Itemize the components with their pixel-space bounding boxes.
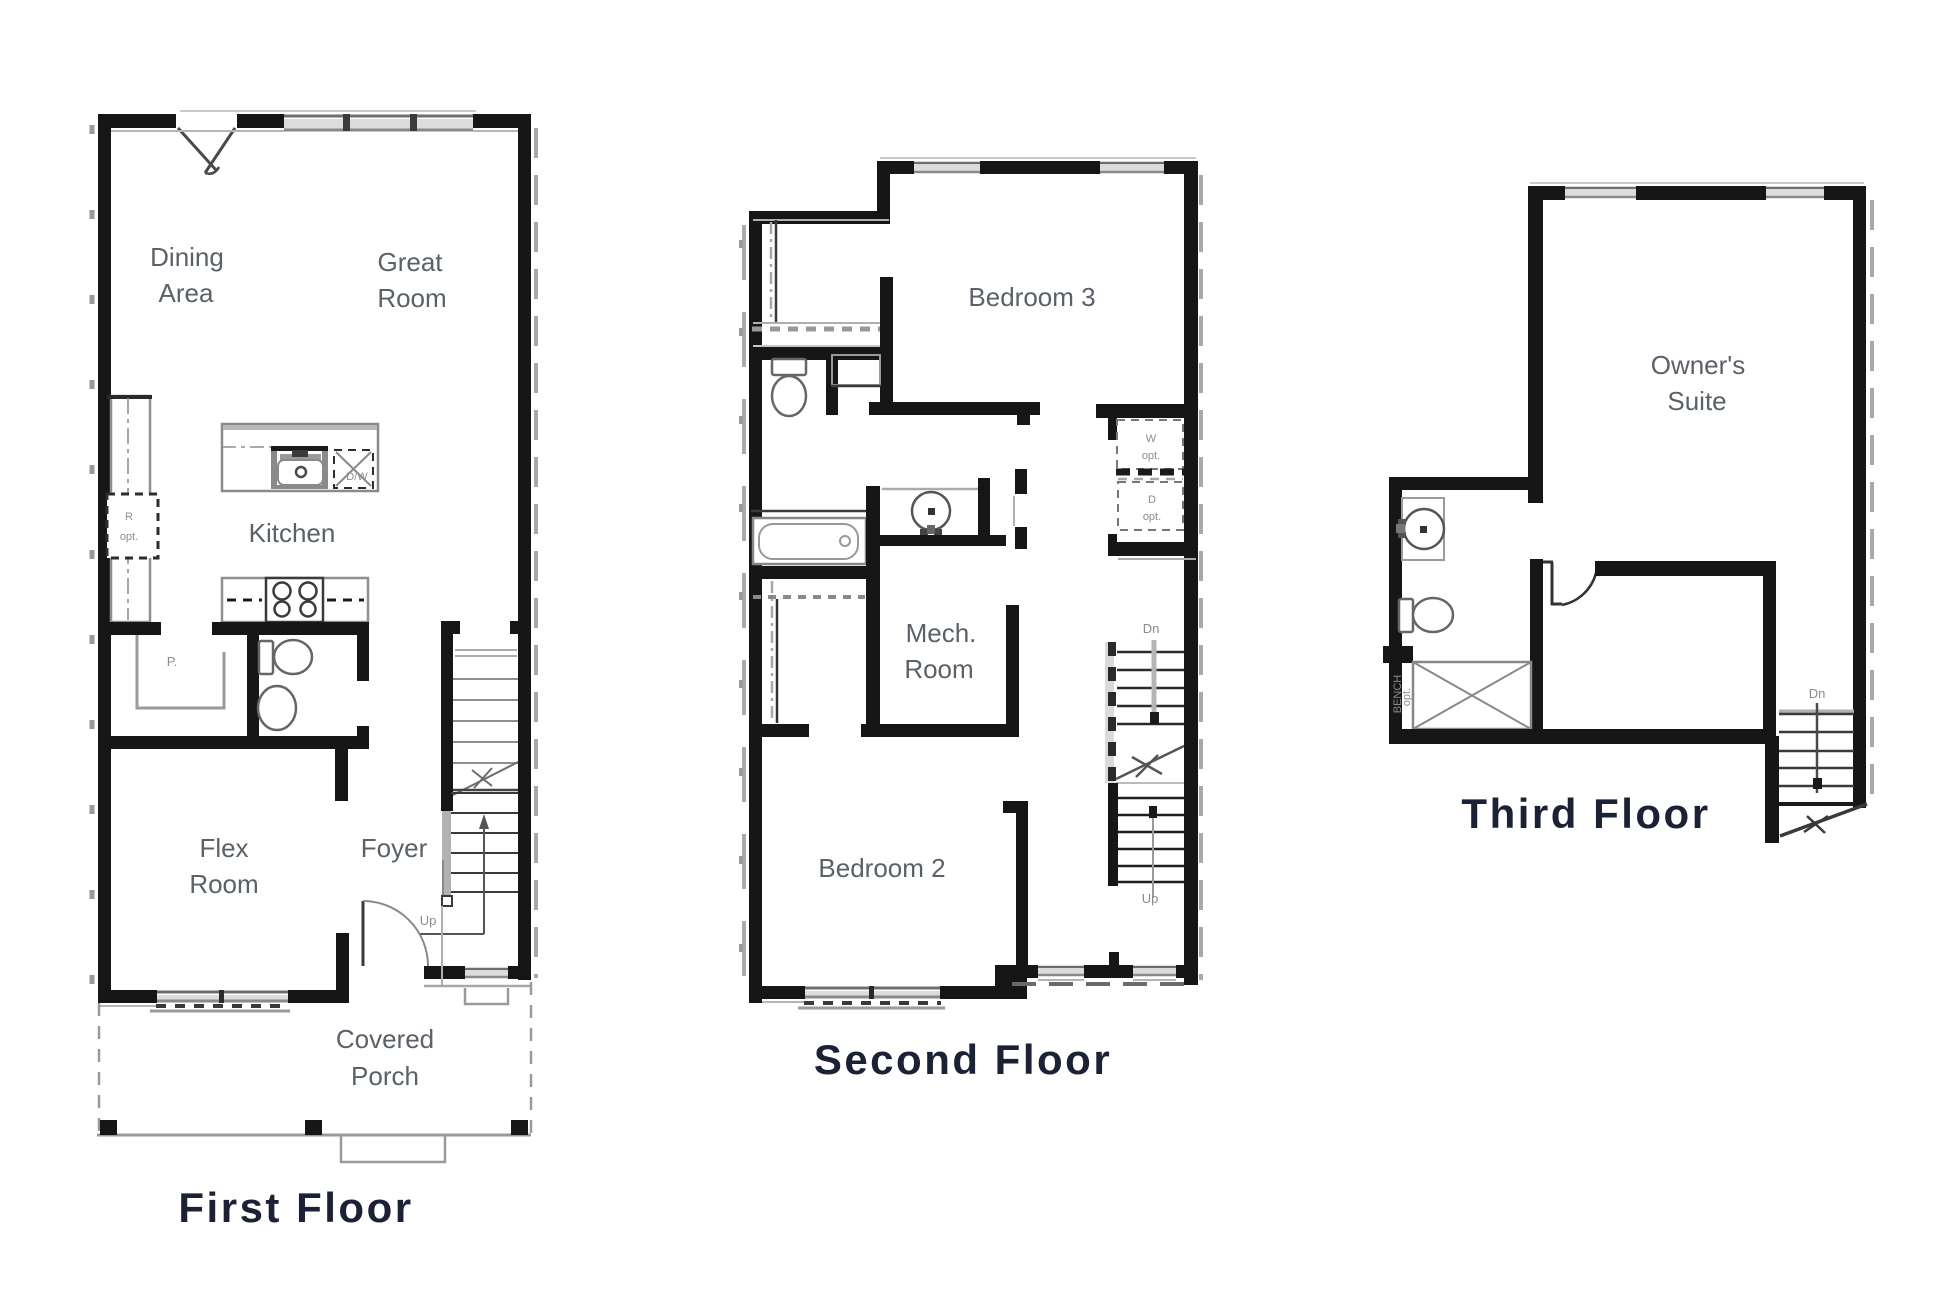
- svg-text:W: W: [1146, 433, 1157, 445]
- svg-text:Flex: Flex: [199, 833, 248, 863]
- svg-text:opt.: opt.: [1143, 511, 1161, 523]
- svg-text:opt.: opt.: [120, 531, 138, 543]
- svg-text:Dn: Dn: [1143, 621, 1160, 636]
- svg-text:Suite: Suite: [1667, 386, 1726, 416]
- svg-text:Second Floor: Second Floor: [814, 1036, 1112, 1083]
- svg-text:Owner's: Owner's: [1651, 350, 1746, 380]
- svg-text:D/W: D/W: [346, 471, 368, 483]
- svg-text:Up: Up: [1142, 891, 1159, 906]
- svg-text:opt.: opt.: [1401, 688, 1413, 706]
- svg-text:Room: Room: [904, 654, 973, 684]
- svg-text:Dn: Dn: [1809, 686, 1826, 701]
- svg-text:Room: Room: [189, 869, 258, 899]
- svg-text:Porch: Porch: [351, 1061, 419, 1091]
- svg-text:Bedroom 3: Bedroom 3: [968, 282, 1095, 312]
- svg-text:P.: P.: [167, 654, 178, 669]
- svg-text:Mech.: Mech.: [906, 618, 977, 648]
- svg-text:D: D: [1148, 494, 1156, 506]
- svg-text:Dining: Dining: [150, 242, 224, 272]
- svg-text:Room: Room: [377, 283, 446, 313]
- svg-text:Up: Up: [420, 913, 437, 928]
- svg-text:opt.: opt.: [1142, 450, 1160, 462]
- svg-text:Covered: Covered: [336, 1024, 434, 1054]
- svg-text:First Floor: First Floor: [178, 1184, 413, 1231]
- svg-text:Foyer: Foyer: [361, 833, 428, 863]
- svg-text:Kitchen: Kitchen: [249, 518, 336, 548]
- svg-text:R: R: [125, 511, 133, 523]
- svg-text:Third Floor: Third Floor: [1461, 790, 1710, 837]
- svg-text:Area: Area: [159, 278, 214, 308]
- svg-text:Bedroom 2: Bedroom 2: [818, 853, 945, 883]
- svg-text:Great: Great: [377, 247, 443, 277]
